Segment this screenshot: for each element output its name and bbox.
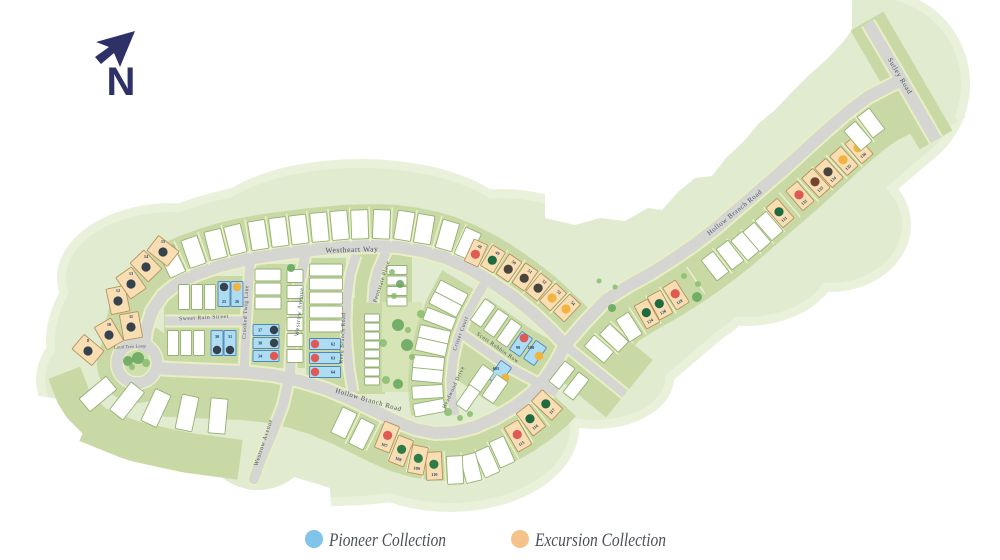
- svg-text:110: 110: [431, 472, 437, 477]
- svg-text:63: 63: [331, 356, 335, 361]
- svg-text:Pioneer Collection: Pioneer Collection: [328, 531, 446, 551]
- svg-text:30: 30: [215, 334, 219, 339]
- svg-text:13: 13: [129, 271, 133, 276]
- svg-text:10: 10: [107, 322, 111, 327]
- svg-text:31: 31: [228, 334, 232, 339]
- svg-text:8: 8: [87, 338, 89, 343]
- svg-text:25: 25: [222, 299, 226, 304]
- svg-text:38: 38: [258, 341, 262, 346]
- svg-text:100: 100: [528, 345, 534, 350]
- svg-text:Excursion Collection: Excursion Collection: [534, 531, 666, 551]
- svg-text:605: 605: [493, 366, 499, 371]
- svg-text:N: N: [107, 60, 136, 104]
- svg-text:15: 15: [161, 239, 165, 244]
- svg-text:62: 62: [331, 342, 335, 347]
- svg-text:12: 12: [116, 288, 120, 293]
- svg-text:Westheart Way: Westheart Way: [325, 244, 378, 254]
- svg-text:11: 11: [129, 314, 133, 319]
- svg-text:99: 99: [516, 345, 520, 350]
